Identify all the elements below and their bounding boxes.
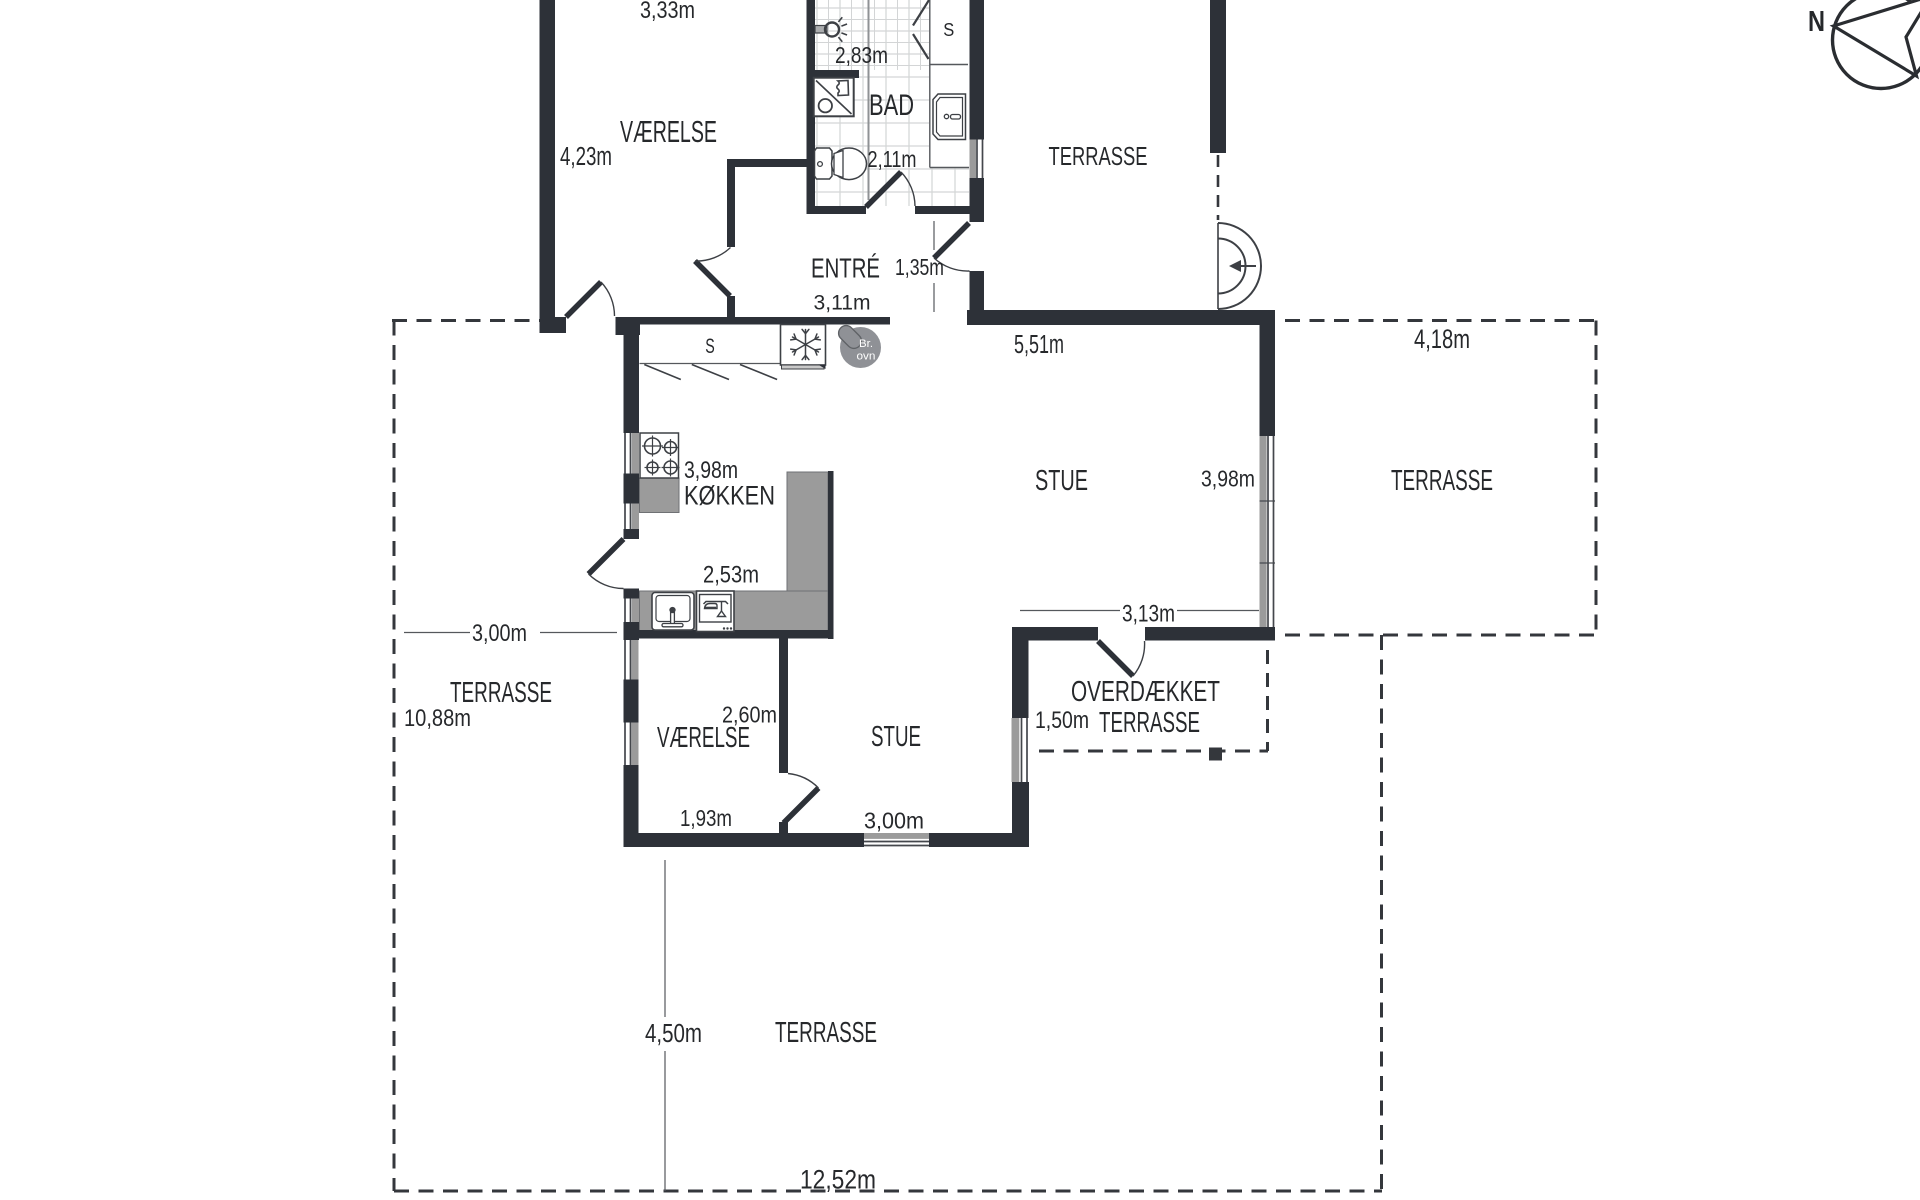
svg-text:VÆRELSE: VÆRELSE bbox=[657, 722, 750, 754]
svg-text:ovn: ovn bbox=[857, 351, 876, 363]
svg-text:4,23m: 4,23m bbox=[560, 143, 612, 171]
svg-text:12,52m: 12,52m bbox=[800, 1165, 876, 1195]
svg-text:3,13m: 3,13m bbox=[1122, 601, 1175, 628]
svg-text:2,53m: 2,53m bbox=[703, 562, 759, 589]
svg-text:3,00m: 3,00m bbox=[472, 620, 527, 647]
svg-text:3,33m: 3,33m bbox=[640, 0, 695, 24]
svg-text:3,00m: 3,00m bbox=[864, 808, 924, 834]
svg-text:KØKKEN: KØKKEN bbox=[684, 481, 775, 511]
svg-text:4,18m: 4,18m bbox=[1414, 324, 1470, 354]
svg-text:TERRASSE: TERRASSE bbox=[775, 1017, 877, 1049]
svg-text:TERRASSE: TERRASSE bbox=[1391, 465, 1493, 497]
svg-text:TERRASSE: TERRASSE bbox=[1099, 707, 1200, 739]
svg-text:1,50m: 1,50m bbox=[1035, 707, 1089, 734]
svg-text:1,93m: 1,93m bbox=[680, 805, 732, 831]
svg-text:VÆRELSE: VÆRELSE bbox=[620, 115, 717, 149]
svg-text:STUE: STUE bbox=[871, 721, 921, 753]
svg-text:OVERDÆKKET: OVERDÆKKET bbox=[1071, 676, 1220, 708]
svg-text:2,83m: 2,83m bbox=[835, 42, 888, 68]
svg-text:10,88m: 10,88m bbox=[404, 705, 471, 732]
svg-text:5,51m: 5,51m bbox=[1014, 331, 1064, 359]
svg-text:1,35m: 1,35m bbox=[895, 254, 944, 280]
svg-text:3,11m: 3,11m bbox=[814, 291, 871, 315]
svg-text:S: S bbox=[705, 335, 715, 358]
svg-text:ENTRÉ: ENTRÉ bbox=[811, 253, 880, 284]
svg-text:N: N bbox=[1808, 6, 1825, 38]
svg-text:3,98m: 3,98m bbox=[1201, 466, 1255, 492]
svg-text:TERRASSE: TERRASSE bbox=[1049, 141, 1148, 171]
svg-text:BAD: BAD bbox=[869, 89, 914, 122]
svg-text:STUE: STUE bbox=[1035, 465, 1088, 497]
svg-text:2,11m: 2,11m bbox=[868, 146, 917, 172]
svg-text:4,50m: 4,50m bbox=[645, 1020, 702, 1048]
svg-text:S: S bbox=[943, 20, 954, 40]
svg-text:Br.: Br. bbox=[859, 338, 873, 350]
